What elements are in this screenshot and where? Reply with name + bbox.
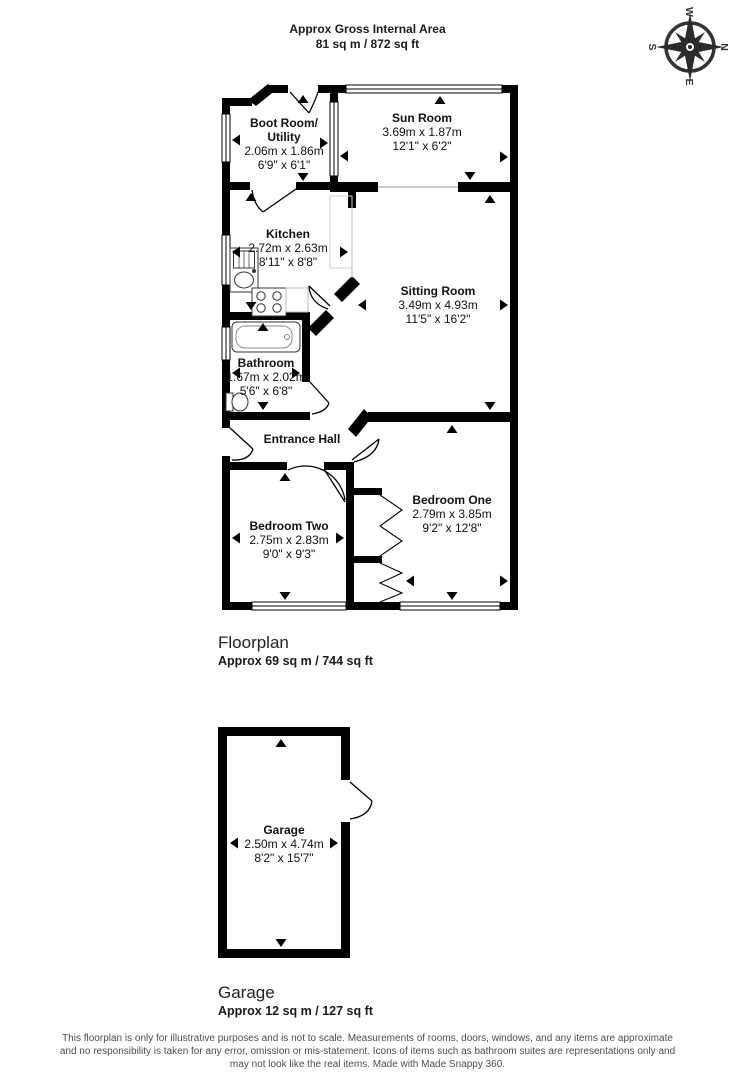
disclaimer-line1: This floorplan is only for illustrative … bbox=[0, 1032, 735, 1045]
arrow-down bbox=[276, 939, 287, 947]
arrow-down bbox=[447, 592, 458, 600]
floorplan-drawing: N E S W bbox=[0, 0, 735, 1080]
floorplan-page: Approx Gross Internal Area 81 sq m / 872… bbox=[0, 0, 735, 1080]
room-label-sun-room: Sun Room 3.69m x 1.87m 12'1" x 6'2" bbox=[382, 111, 461, 153]
arrow-left bbox=[230, 838, 238, 849]
kitchen-metric: 2.72m x 2.63m bbox=[248, 241, 327, 255]
door-garage bbox=[350, 782, 372, 819]
entrance-hall-name: Entrance Hall bbox=[264, 432, 341, 446]
floorplan-section-title: Floorplan bbox=[218, 633, 289, 653]
room-label-bedroom-two: Bedroom Two 2.75m x 2.83m 9'0" x 9'3" bbox=[249, 519, 328, 561]
compass-north-label: N bbox=[718, 43, 730, 51]
window-bedroom-one bbox=[400, 602, 500, 610]
arrow-up bbox=[280, 473, 291, 481]
disclaimer-line2: and no responsibility is taken for any e… bbox=[0, 1045, 735, 1058]
compass-west-label: W bbox=[683, 7, 695, 17]
bathtub-icon bbox=[232, 322, 300, 352]
arrow-up bbox=[485, 195, 496, 203]
arrow-left bbox=[232, 533, 240, 544]
window-bedroom-two bbox=[252, 602, 346, 610]
window-sun-room-side bbox=[330, 102, 338, 176]
kitchen-name: Kitchen bbox=[248, 227, 327, 241]
arrow-down bbox=[465, 172, 476, 180]
bathroom-imperial: 5'6" x 6'8" bbox=[226, 384, 305, 398]
arrow-right bbox=[500, 576, 508, 587]
bedroom-one-name: Bedroom One bbox=[412, 493, 491, 507]
bedroom-two-name: Bedroom Two bbox=[249, 519, 328, 533]
arrow-right bbox=[340, 247, 348, 258]
arrow-up bbox=[246, 193, 257, 201]
arrow-left bbox=[406, 576, 414, 587]
room-label-bathroom: Bathroom 1.67m x 2.02m 5'6" x 6'8" bbox=[226, 356, 305, 398]
window-boot-room bbox=[222, 114, 230, 162]
sitting-room-imperial: 11'5" x 16'2" bbox=[398, 312, 477, 326]
room-label-kitchen: Kitchen 2.72m x 2.63m 8'11" x 8'8" bbox=[248, 227, 327, 269]
arrow-up bbox=[435, 96, 446, 104]
room-label-boot-room: Boot Room/ Utility 2.06m x 1.86m 6'9" x … bbox=[244, 116, 323, 172]
door-bedroom-one bbox=[352, 439, 379, 462]
compass-rose-icon: N E S W bbox=[646, 7, 730, 85]
bathroom-metric: 1.67m x 2.02m bbox=[226, 370, 305, 384]
boot-room-metric: 2.06m x 1.86m bbox=[244, 144, 323, 158]
arrow-right bbox=[336, 533, 344, 544]
arrow-right bbox=[500, 152, 508, 163]
arrow-down bbox=[485, 402, 496, 410]
garage-section-title: Garage bbox=[218, 983, 275, 1003]
sitting-room-name: Sitting Room bbox=[398, 284, 477, 298]
room-label-sitting-room: Sitting Room 3.49m x 4.93m 11'5" x 16'2" bbox=[398, 284, 477, 326]
bathroom-name: Bathroom bbox=[226, 356, 305, 370]
stove-icon bbox=[252, 288, 286, 316]
door-kitchen-to-sitting bbox=[309, 286, 330, 309]
boot-room-name-line1: Boot Room/ bbox=[244, 116, 323, 130]
compass-south-label: S bbox=[646, 43, 658, 50]
garage-section-subtitle: Approx 12 sq m / 127 sq ft bbox=[218, 1004, 373, 1018]
room-label-garage: Garage 2.50m x 4.74m 8'2" x 15'7" bbox=[244, 823, 323, 865]
compass-east-label: E bbox=[683, 78, 695, 85]
boot-room-imperial: 6'9" x 6'1" bbox=[244, 158, 323, 172]
bedroom-one-metric: 2.79m x 3.85m bbox=[412, 507, 491, 521]
arrow-up bbox=[298, 95, 309, 103]
kitchen-imperial: 8'11" x 8'8" bbox=[248, 255, 327, 269]
door-bathroom bbox=[310, 382, 329, 414]
sitting-room-metric: 3.49m x 4.93m bbox=[398, 298, 477, 312]
window-sun-room-top bbox=[346, 85, 502, 93]
arrow-down bbox=[298, 173, 309, 181]
garage-name: Garage bbox=[244, 823, 323, 837]
bedroom-two-imperial: 9'0" x 9'3" bbox=[249, 547, 328, 561]
arrow-right bbox=[500, 300, 508, 311]
arrow-down bbox=[258, 402, 269, 410]
bedroom-two-metric: 2.75m x 2.83m bbox=[249, 533, 328, 547]
room-label-bedroom-one: Bedroom One 2.79m x 3.85m 9'2" x 12'8" bbox=[412, 493, 491, 535]
wardrobe-bifold-doors bbox=[380, 495, 402, 602]
arrow-right bbox=[330, 838, 338, 849]
arrow-left bbox=[232, 135, 240, 146]
sun-room-metric: 3.69m x 1.87m bbox=[382, 125, 461, 139]
arrow-left bbox=[358, 300, 366, 311]
door-front-entrance bbox=[230, 428, 253, 460]
arrow-up bbox=[447, 425, 458, 433]
door-boot-to-kitchen bbox=[252, 189, 296, 212]
disclaimer: This floorplan is only for illustrative … bbox=[0, 1032, 735, 1071]
sun-room-name: Sun Room bbox=[382, 111, 461, 125]
disclaimer-line3: may not look like the real items. Made w… bbox=[0, 1058, 735, 1071]
garage-imperial: 8'2" x 15'7" bbox=[244, 851, 323, 865]
arrow-left bbox=[340, 151, 348, 162]
floorplan-section-subtitle: Approx 69 sq m / 744 sq ft bbox=[218, 654, 373, 668]
room-label-entrance-hall: Entrance Hall bbox=[264, 432, 341, 446]
arrow-up bbox=[276, 739, 287, 747]
sun-room-imperial: 12'1" x 6'2" bbox=[382, 139, 461, 153]
garage-metric: 2.50m x 4.74m bbox=[244, 837, 323, 851]
window-kitchen bbox=[222, 235, 230, 285]
door-bedroom-two bbox=[288, 466, 345, 502]
bedroom-one-imperial: 9'2" x 12'8" bbox=[412, 521, 491, 535]
arrow-down bbox=[280, 592, 291, 600]
boot-room-name-line2: Utility bbox=[244, 130, 323, 144]
